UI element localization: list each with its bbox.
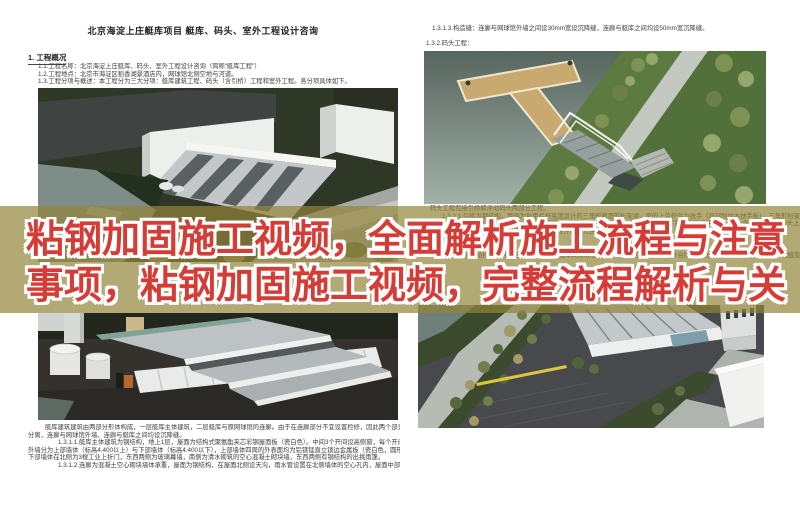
bottom-par-line-1: 艇库建筑建筑由两部分形体构成，一层艇库主体建筑，二层艇库与原网球馆的连廊。由于在… [28,424,400,432]
banner-title-line-1: 粘钢加固施工视频，全面解析施工流程与注意 [26,217,800,263]
render-site-aerial-image [418,305,764,428]
intro-line-3: 1.3.工程分项与概述：本工程分为三大分项：艇库建筑工程、码头（含引桥）工程和室… [38,78,398,86]
bottom-par-line-5: 下部墙体在北侧为3樘工业上折门，东西两侧为玻璃幕墙，南侧为清水砌筑的空心混凝土砌… [28,454,400,462]
left-bottom-paragraph: 艇库建筑建筑由两部分形体构成，一层艇库主体建筑，二层艇库与原网球馆的连廊。由于在… [28,424,400,470]
bottom-par-line-3: 1.3.1.1.艇库主体建筑为钢结构，地上1层，屋面为结构式聚氨酯夹芯彩钢屋面板… [28,439,400,447]
right-top-line-1: 1.3.1.3.构造缝：连廊与网球馆外墙之间设30mm宽设沉降缝，连廊与艇库之间… [432,25,708,33]
page: 北京海淀上庄艇库项目 艇库、码头、室外工程设计咨询 1. 工程概况 1.1.工程… [0,0,800,514]
render-boathouse-closeup-image [38,313,398,420]
right-top-line-2: 1.3.2.码头工程： [426,40,473,48]
banner-title: 粘钢加固施工视频，全面解析施工流程与注意 事项，粘钢加固施工视频，完整流程解析与… [0,217,800,313]
left-page-title: 北京海淀上庄艇库项目 艇库、码头、室外工程设计咨询 [38,24,368,37]
render-dock-bridge-image [424,51,766,204]
left-intro-block: 1.1.工程名称：北京海淀上庄艇库、码头、室外工程设计咨询（简称“艇库工程”） … [38,63,398,86]
banner-title-line-2: 事项，粘钢加固施工视频，完整流程解析与关 [26,263,800,309]
intro-line-1: 1.1.工程名称：北京海淀上庄艇库、码头、室外工程设计咨询（简称“艇库工程”） [38,63,398,71]
bottom-par-line-6: 1.3.1.2.连廊为混凝土空心砌块墙体承重，屋面为钢结构，在屋面北侧设天沟，雨… [28,462,400,470]
